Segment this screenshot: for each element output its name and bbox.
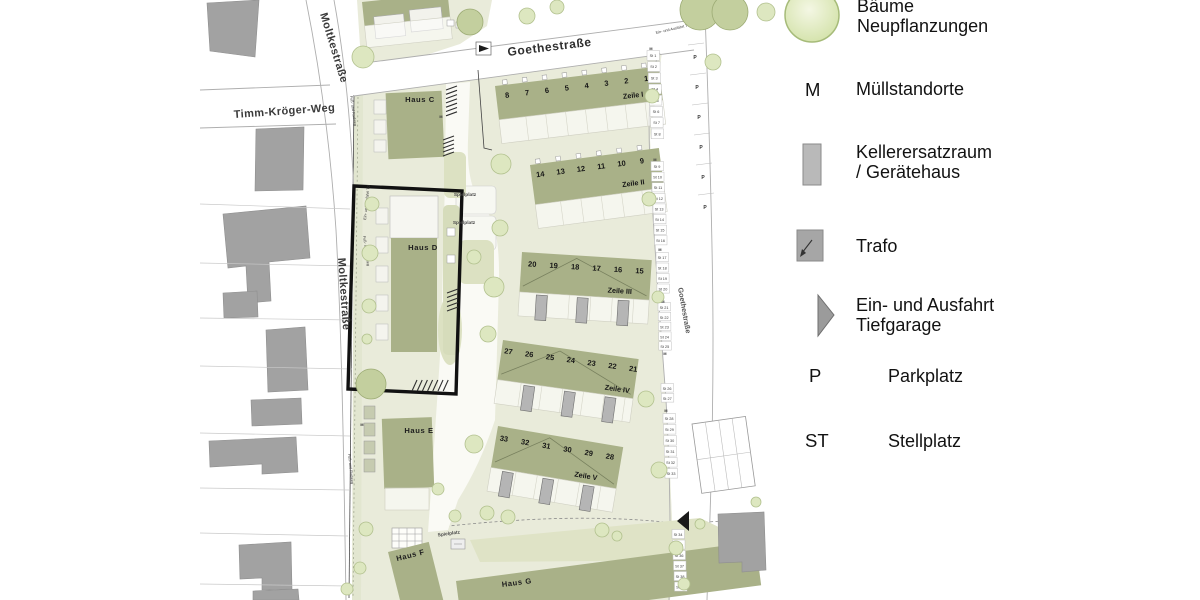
timm-kroeger-weg-label: Timm-Kröger-Weg: [233, 102, 335, 121]
zeile-unit-number: 13: [556, 167, 565, 177]
legend-label: / Gerätehaus: [856, 162, 960, 182]
tree-swatch-icon: [785, 0, 839, 42]
parkplatz-label: P: [703, 205, 707, 211]
stellplatz-label: St 3: [651, 76, 658, 80]
existing-building: [223, 291, 258, 318]
tree-icon: [695, 519, 705, 529]
muellstandort-label: M: [664, 409, 667, 413]
zeile-unit-number: 19: [549, 261, 558, 271]
moltkestrasse-label: Moltkestraße: [317, 11, 350, 84]
stellplatz-label: St 21: [660, 306, 669, 310]
keller-box: [535, 295, 548, 321]
tree-icon: [341, 583, 353, 595]
stellplatz-label: St 18: [658, 267, 667, 271]
zeile-unit-number: 15: [635, 266, 644, 276]
legend-label: Kellerersatzraum: [856, 142, 992, 162]
existing-building: [207, 0, 259, 57]
tree-icon: [757, 3, 775, 21]
parkplatz-label: P: [693, 55, 697, 61]
stellplatz-label: St 6: [653, 110, 660, 114]
stellplatz-label: St 8: [654, 132, 661, 136]
dormer: [622, 65, 627, 70]
existing-building: [718, 512, 766, 572]
spielplatz-label: Spielplatz: [453, 220, 476, 226]
tree-icon: [492, 220, 508, 236]
dormer: [576, 153, 581, 158]
stellplatz-label: St 26: [663, 387, 672, 391]
tree-icon: [457, 9, 483, 35]
muellstandort-label: M: [658, 248, 661, 252]
tree-icon: [678, 578, 690, 590]
haus-d-building: [391, 238, 437, 352]
dormer: [542, 75, 547, 80]
stellplatz-label: St 34: [674, 533, 683, 537]
zeile-unit-number: 21: [628, 364, 638, 374]
keller-box: [576, 298, 589, 324]
tree-icon: [465, 435, 483, 453]
dormer: [562, 72, 567, 77]
stellplatz-label: St 13: [655, 207, 664, 211]
zeile-unit-number: 26: [525, 349, 535, 359]
zeile-unit-number: 22: [608, 361, 618, 371]
site-plan-map: Haus C Haus D Haus E: [0, 0, 1200, 600]
zeile-unit-number: 10: [617, 159, 626, 169]
haus-e-label: Haus E: [404, 426, 433, 435]
dormer: [602, 68, 607, 73]
tree-icon: [642, 192, 656, 206]
muellstandort-label: M: [439, 115, 442, 119]
tree-icon: [362, 245, 378, 261]
haus-c-label: Haus C: [405, 95, 435, 104]
tree-icon: [645, 89, 659, 103]
dormer: [637, 145, 642, 150]
tree-icon: [484, 277, 504, 297]
muellstandort-label: M: [649, 47, 652, 51]
stellplatz-label: St 19: [658, 277, 667, 281]
tree-icon: [362, 299, 376, 313]
tree-icon: [501, 510, 515, 524]
zeile-unit-number: 33: [499, 434, 509, 444]
dormer: [522, 77, 527, 82]
tree-icon: [432, 483, 444, 495]
stellplatz-label: St 33: [667, 472, 676, 476]
existing-building: [255, 127, 304, 191]
stellplatz-label: St 7: [653, 121, 660, 125]
stellplatz-label: St 1: [650, 54, 657, 58]
muellstandort-label: M: [653, 158, 656, 162]
tree-icon: [612, 531, 622, 541]
legend-label: Trafo: [856, 236, 897, 256]
tree-icon: [705, 54, 721, 70]
zeile-unit-number: 29: [584, 448, 594, 458]
stellplatz-label: St 9: [654, 165, 661, 169]
zeile-row-3: 201918171615Zeile III: [518, 252, 652, 327]
parkplatz-label: P: [699, 145, 703, 151]
dormer: [556, 156, 561, 161]
stellplatz-label: St 23: [660, 326, 669, 330]
existing-building: [253, 589, 299, 600]
stellplatz-label: St 16: [656, 239, 665, 243]
stellplatz-label: St 31: [666, 450, 675, 454]
parking-divider: [694, 133, 710, 135]
parking-divider: [690, 73, 706, 75]
tree-icon: [480, 326, 496, 342]
existing-building: [251, 398, 302, 426]
stellplatz-label: St 30: [665, 439, 674, 443]
tree-icon: [359, 522, 373, 536]
legend-key-p: P: [809, 365, 821, 386]
zeile-unit-number: 23: [587, 358, 597, 368]
spielplatz-label: Spielplatz: [454, 192, 477, 198]
dormer: [502, 80, 507, 85]
legend-label: Parkplatz: [888, 366, 963, 386]
parking-lot: [692, 416, 755, 493]
stellplatz-label: St 17: [658, 256, 667, 260]
stellplatz-label: St 15: [656, 229, 665, 233]
sandbox-icon: [451, 539, 465, 549]
tree-icon: [669, 541, 683, 555]
keller-box: [617, 300, 630, 326]
legend: Bäume Neupflanzungen M Müllstandorte Kel…: [785, 0, 994, 451]
tree-icon: [751, 497, 761, 507]
legend-key-st: ST: [805, 430, 829, 451]
muellstandort-label: M: [663, 352, 666, 356]
dormer: [617, 148, 622, 153]
legend-label: Tiefgarage: [856, 315, 941, 335]
legend-label: Stellplatz: [888, 431, 961, 451]
zeile-unit-number: 31: [542, 441, 552, 451]
tree-icon: [550, 0, 564, 14]
parking-divider: [692, 103, 708, 105]
stellplatz-label: St 27: [663, 397, 672, 401]
tree-icon: [651, 462, 667, 478]
tree-icon: [365, 197, 379, 211]
goethestrasse-label-vertical: Goethestraße: [676, 287, 693, 334]
zeile-unit-number: 16: [614, 265, 623, 275]
stellplatz-label: St 29: [665, 428, 674, 432]
tree-icon: [595, 523, 609, 537]
stellplatz-label: St 25: [660, 345, 669, 349]
existing-building: [223, 206, 310, 303]
tree-icon: [480, 506, 494, 520]
tiefgarage-swatch-icon: [818, 295, 834, 336]
zeile-label: Zeile III: [607, 285, 632, 296]
tree-icon: [356, 369, 386, 399]
stellplatz-label: St 32: [666, 461, 675, 465]
existing-buildings: [200, 0, 353, 600]
legend-label: Ein- und Ausfahrt: [856, 295, 994, 315]
parkplatz-label: P: [697, 115, 701, 121]
parking-divider: [698, 193, 714, 195]
dormer: [582, 70, 587, 75]
tree-icon: [519, 8, 535, 24]
existing-building: [209, 437, 298, 474]
tree-icon: [467, 250, 481, 264]
legend-label: Bäume: [857, 0, 914, 16]
zeile-unit-number: 12: [576, 164, 585, 174]
dormer: [641, 63, 646, 68]
stellplatz-label: St 11: [654, 186, 663, 190]
dormer: [596, 151, 601, 156]
tree-icon: [354, 562, 366, 574]
keller-swatch-icon: [803, 144, 821, 185]
zeile-unit-number: 18: [571, 262, 580, 272]
parkplatz-label: P: [695, 85, 699, 91]
tree-icon: [352, 46, 374, 68]
stellplatz-label: St 24: [660, 335, 669, 339]
zeile-unit-number: 25: [545, 352, 555, 362]
dormer: [535, 159, 540, 164]
zeile-unit-number: 27: [504, 346, 514, 356]
zeile-unit-number: 32: [520, 437, 530, 447]
tree-icon: [449, 510, 461, 522]
tree-icon: [638, 391, 654, 407]
zeile-unit-number: 20: [528, 259, 537, 269]
zeile-unit-number: 28: [605, 451, 615, 461]
parkplatz-label: P: [701, 175, 705, 181]
zeile-unit-number: 30: [563, 444, 573, 454]
existing-building: [266, 327, 308, 392]
legend-label: Neupflanzungen: [857, 16, 988, 36]
stellplatz-label: St 10: [653, 176, 662, 180]
tree-icon: [491, 154, 511, 174]
stellplatz-label: St 22: [660, 316, 669, 320]
muellstandort-label: M: [360, 423, 363, 427]
stellplatz-label: St 28: [665, 417, 674, 421]
stellplatz-label: St 14: [655, 218, 664, 222]
legend-key-m: M: [805, 79, 820, 100]
tree-icon: [362, 334, 372, 344]
haus-c-block: Haus C: [374, 91, 444, 159]
legend-label: Müllstandorte: [856, 79, 964, 99]
zeile-unit-number: 17: [592, 263, 601, 273]
stellplatz-label: St 37: [675, 565, 684, 569]
zeile-unit-number: 11: [597, 161, 606, 171]
existing-building: [239, 542, 292, 590]
tree-icon: [712, 0, 748, 30]
tree-icon: [652, 291, 664, 303]
stellplatz-label: St 2: [650, 65, 657, 69]
haus-d-label: Haus D: [408, 243, 438, 252]
